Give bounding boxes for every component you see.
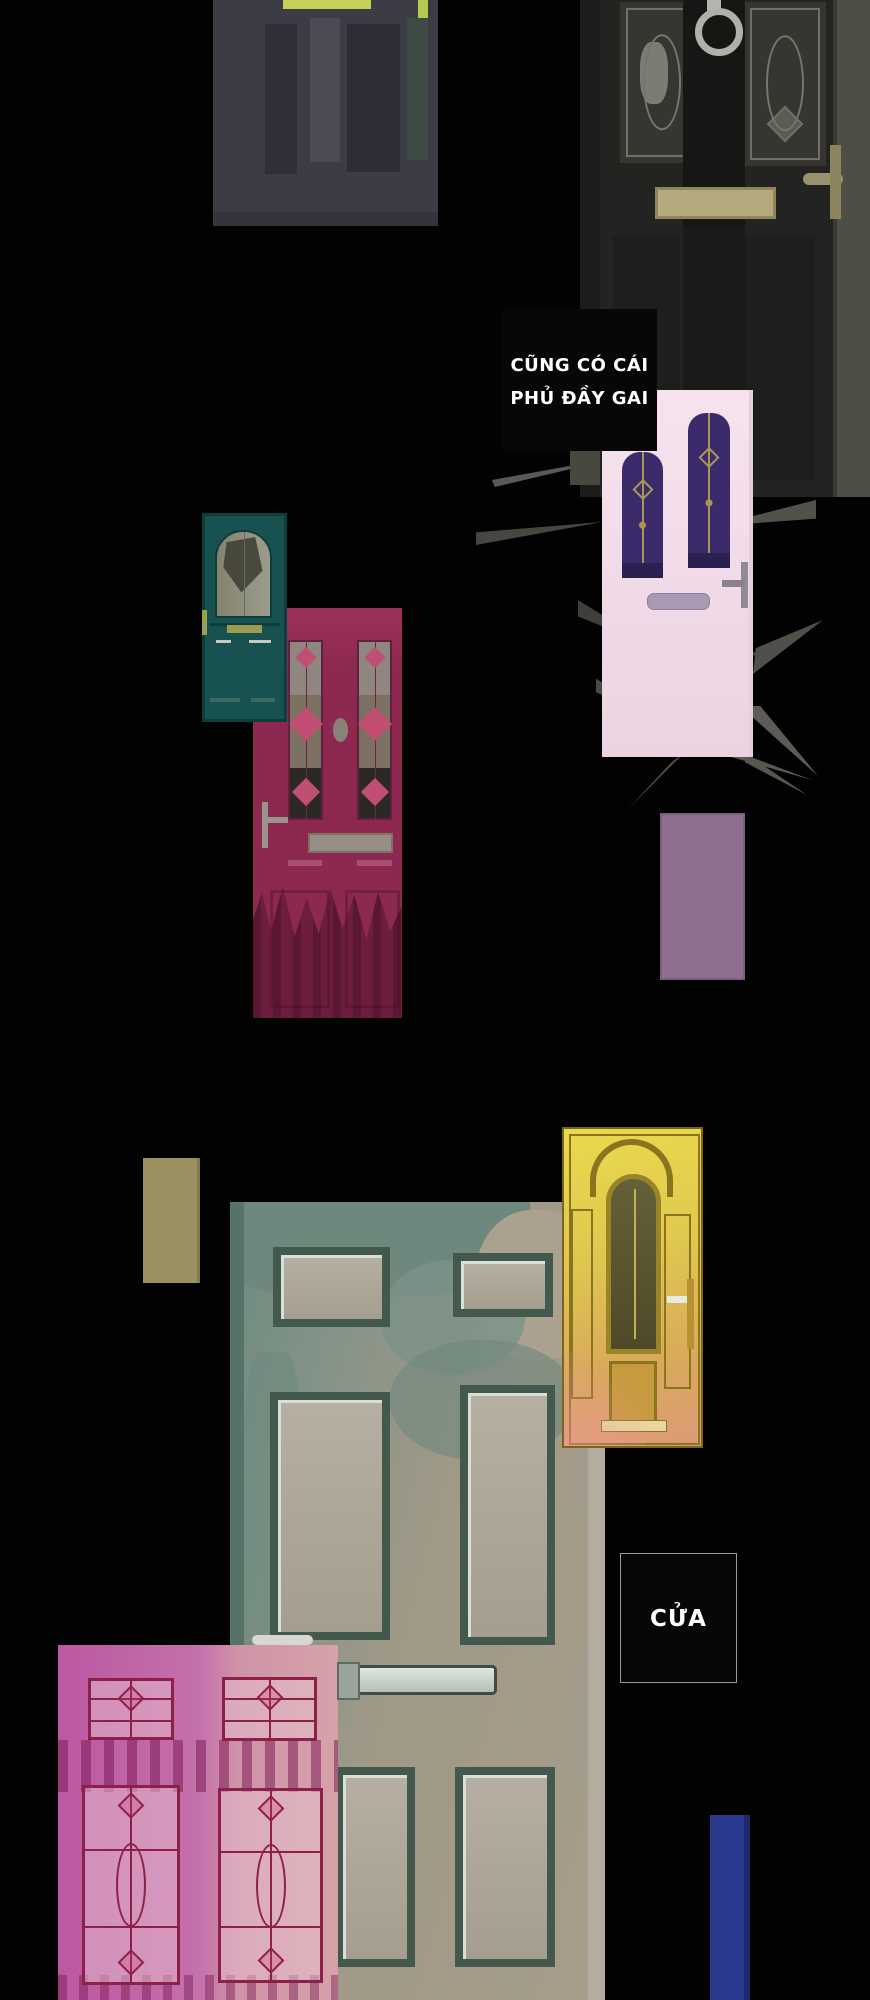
lower-door-panel (745, 235, 815, 480)
letter-plate (308, 833, 393, 853)
door-edge-tag (202, 610, 207, 635)
metal-hinge (337, 1662, 360, 1700)
door-detail-dash (251, 698, 275, 702)
thorn-spike (476, 517, 602, 545)
lower-door-panel (270, 890, 330, 1008)
olive-rectangle (143, 1158, 200, 1283)
glass-diamond-motif (291, 778, 319, 806)
lower-door-panel (345, 890, 400, 1008)
door-handle-plate (830, 145, 841, 219)
mail-slot (227, 625, 262, 633)
glass-diamond-motif (257, 1947, 284, 1974)
recessed-panel (273, 1247, 390, 1327)
door-handle-bar (722, 580, 745, 587)
purple-stained-glass-panel (688, 413, 730, 568)
center-ornament (333, 718, 348, 742)
glass-highlight (640, 42, 668, 104)
arched-window (215, 530, 272, 618)
purple-stained-glass-panel (622, 452, 663, 578)
glass-diamond-motif (767, 105, 804, 142)
leaded-glass-window (82, 1785, 180, 1985)
lower-wood-panel (609, 1361, 657, 1429)
recessed-panel (335, 1767, 415, 1967)
door-handle-bar (262, 817, 288, 823)
door-edge-highlight (749, 390, 753, 757)
recessed-panel (455, 1767, 555, 1967)
door-center-stile (310, 18, 340, 162)
door-detail-dash (210, 698, 240, 702)
glass-diamond-motif (360, 778, 388, 806)
glass-diamond-motif (118, 1792, 145, 1819)
stained-glass-window (357, 640, 392, 820)
glass-oval-motif (256, 1844, 286, 1928)
door-frame-right (833, 0, 870, 497)
ornate-golden-door (562, 1127, 703, 1448)
kick-plate (601, 1420, 667, 1432)
glass-diamond-motif (118, 1949, 145, 1976)
glass-oval-motif (116, 1843, 146, 1927)
door-handle (262, 802, 268, 848)
recessed-panel (460, 1385, 555, 1645)
leaded-glass-window (88, 1678, 174, 1740)
door-handle-rod (252, 1635, 313, 1645)
stained-glass-window (288, 640, 323, 820)
window-sill-highlight (357, 860, 392, 866)
door-bottom-shadow (213, 212, 438, 226)
speech-line: CŨNG CÓ CÁI (502, 349, 657, 382)
leaded-glass-window (742, 0, 828, 168)
leaded-glass-window (222, 1677, 317, 1741)
door-knocker-ring (695, 8, 743, 56)
glass-diamond-motif (295, 647, 316, 668)
lit-transom-window (283, 0, 371, 9)
door-panel (347, 24, 400, 172)
glass-diamond-motif (364, 647, 385, 668)
magenta-leaded-glass-door (58, 1645, 338, 2000)
arched-glass-window (606, 1174, 661, 1354)
speech-box: CỬA (620, 1553, 737, 1683)
door-detail-dash (249, 640, 271, 643)
recessed-panel (453, 1253, 553, 1317)
teal-arched-window-door (202, 513, 287, 722)
comic-panel: CŨNG CÓ CÁI PHỦ ĐẦY GAI (0, 0, 870, 2000)
purple-rectangle (660, 813, 745, 980)
speech-line: PHỦ ĐẦY GAI (502, 382, 657, 415)
glass-diamond-motif (358, 707, 392, 741)
speech-line: CỬA (650, 1606, 707, 1632)
glass-diamond-motif (257, 1795, 284, 1822)
brass-mail-slot (655, 187, 776, 219)
leaded-glass-window (218, 1788, 323, 1983)
glass-diamond-motif (256, 1684, 283, 1711)
recessed-panel (270, 1392, 390, 1640)
speech-box: CŨNG CÓ CÁI PHỦ ĐẦY GAI (502, 309, 657, 451)
metal-letter-plate (347, 1665, 497, 1695)
door-edge-column (407, 18, 428, 160)
dark-door-with-lit-transom (213, 0, 438, 226)
door-detail-dash (216, 640, 231, 643)
mail-slot (647, 593, 710, 610)
blue-rectangle (710, 1815, 750, 2000)
door-handle-plate (687, 1279, 694, 1349)
side-column-panel (571, 1209, 593, 1399)
thorn-spike (628, 753, 684, 809)
window-sill-highlight (288, 860, 322, 866)
glass-diamond-motif (289, 707, 323, 741)
glass-diamond-motif (118, 1685, 145, 1712)
thorn-spike (753, 620, 823, 674)
door-panel (265, 24, 297, 174)
